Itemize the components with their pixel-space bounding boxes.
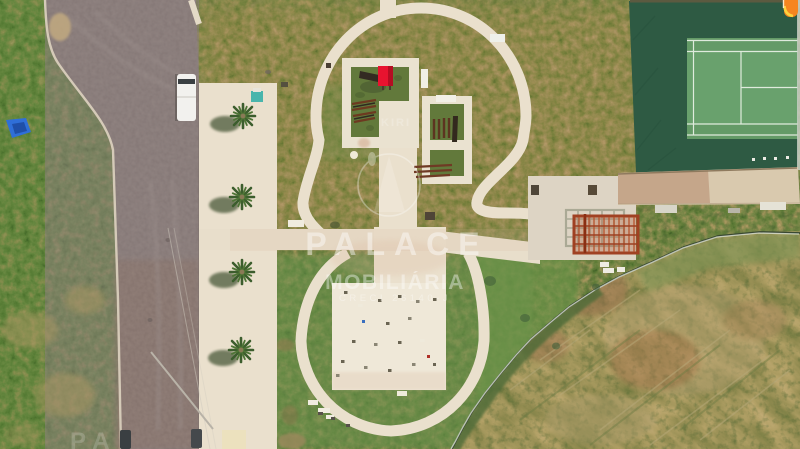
svg-text:MOBILIÁRIA: MOBILIÁRIA (325, 271, 465, 294)
svg-text:PALACE: PALACE (305, 226, 488, 262)
svg-text:KIRI: KIRI (381, 117, 411, 129)
svg-text:PA: PA (70, 428, 118, 449)
svg-text:CRECI 26140-J: CRECI 26140-J (339, 293, 451, 304)
